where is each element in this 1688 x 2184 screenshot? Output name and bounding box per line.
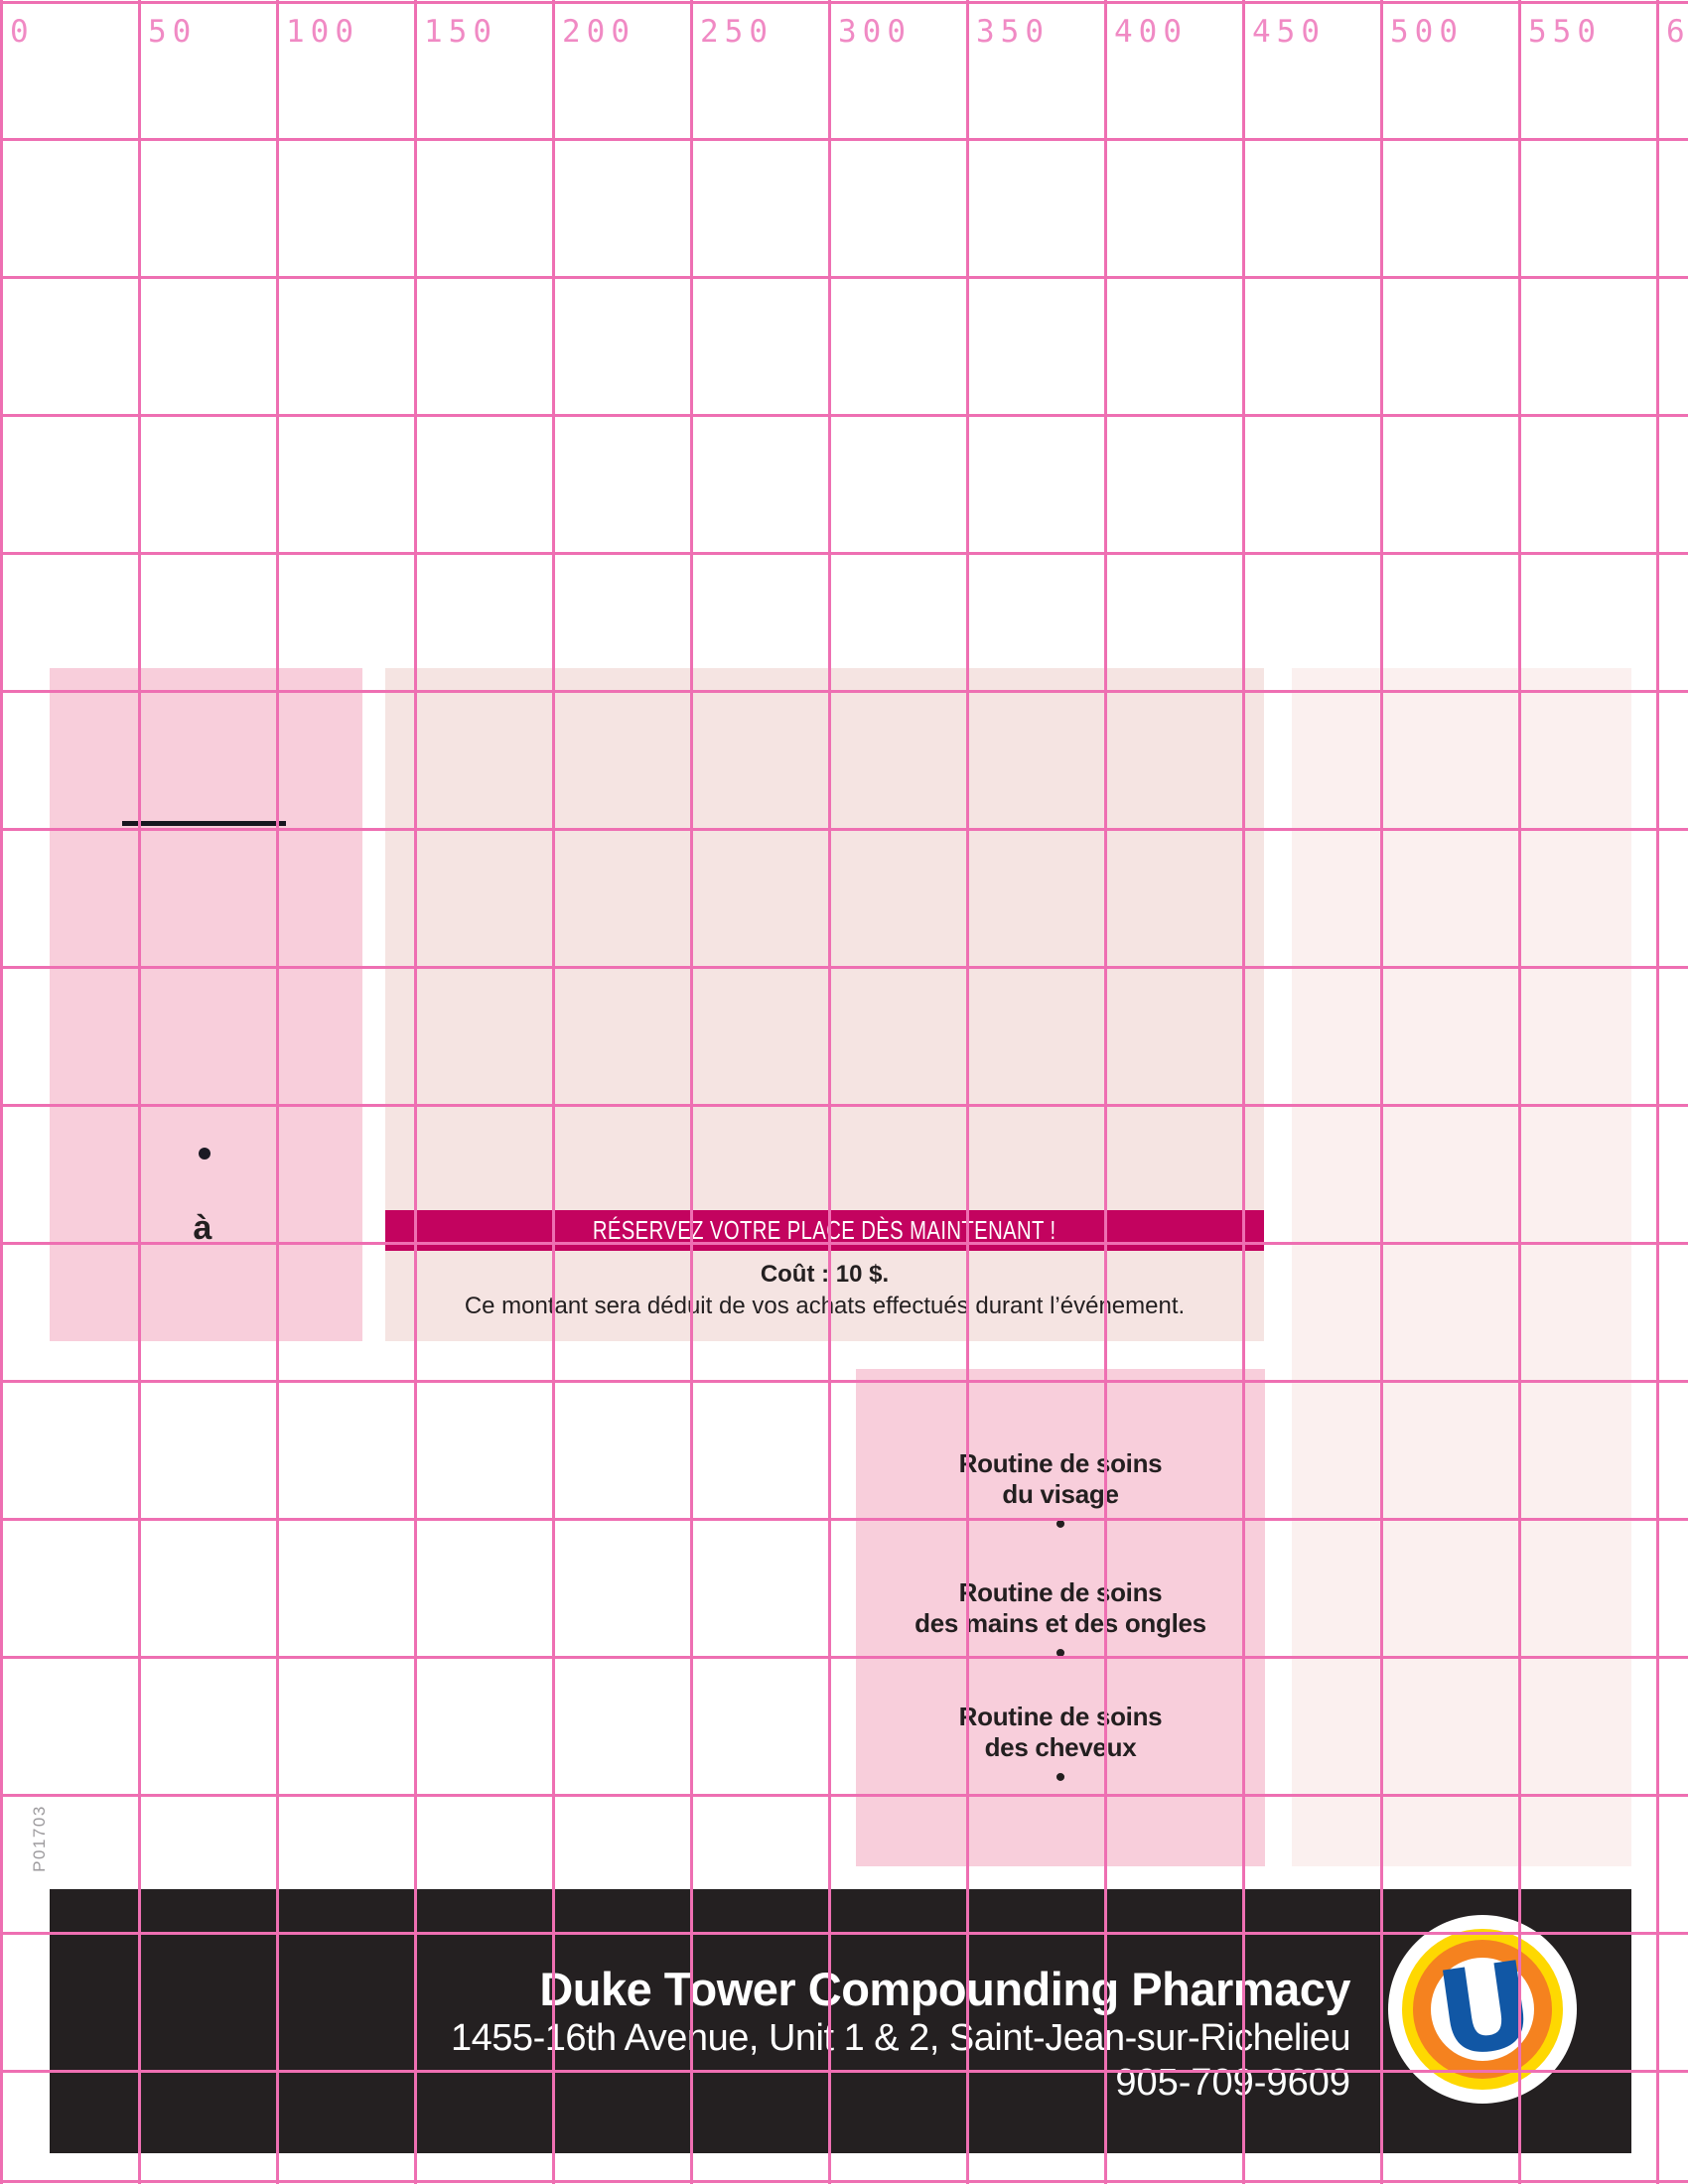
- grid-line-horizontal: [0, 414, 1688, 417]
- routine-line: des cheveux: [856, 1732, 1265, 1763]
- ruler-label: 150: [424, 14, 497, 50]
- proof-code-label: P01703: [30, 1794, 50, 1883]
- routine-item: Routine de soins des cheveux •: [856, 1702, 1265, 1791]
- ruler-label: 50: [148, 14, 197, 50]
- uniprix-logo: U: [1388, 1915, 1577, 2104]
- pharmacy-name: Duke Tower Compounding Pharmacy: [451, 1964, 1350, 2015]
- ruler-label: 400: [1114, 14, 1188, 50]
- ruler-label: 600: [1666, 14, 1688, 50]
- grid-line-horizontal: [0, 138, 1688, 141]
- routine-line: Routine de soins: [856, 1702, 1265, 1732]
- ruler-label: 300: [838, 14, 912, 50]
- grid-line-horizontal: [0, 1, 1688, 4]
- ruler-label: 100: [286, 14, 359, 50]
- proof-page: à RÉSERVEZ VOTRE PLACE DÈS MAINTENANT ! …: [0, 0, 1688, 2184]
- right-pale-panel: [1292, 668, 1631, 1866]
- ruler-label: 350: [976, 14, 1050, 50]
- routine-line: Routine de soins: [856, 1577, 1265, 1608]
- signature-line: [122, 821, 286, 826]
- grid-line-horizontal: [0, 276, 1688, 279]
- pharmacy-address: 1455-16th Avenue, Unit 1 & 2, Saint-Jean…: [451, 2015, 1350, 2061]
- grid-line-horizontal: [0, 552, 1688, 555]
- ruler-label: 250: [700, 14, 774, 50]
- bullet-dot: [199, 1148, 211, 1160]
- cost-line: Coût : 10 $.: [385, 1261, 1264, 1289]
- reservation-banner: RÉSERVEZ VOTRE PLACE DÈS MAINTENANT !: [385, 1210, 1264, 1251]
- routine-item: Routine de soins du visage •: [856, 1448, 1265, 1538]
- word-a: à: [153, 1209, 252, 1248]
- routine-bullet: •: [856, 1512, 1265, 1538]
- ruler-label: 0: [10, 14, 35, 50]
- routine-line: Routine de soins: [856, 1448, 1265, 1479]
- grid-line-horizontal: [0, 2180, 1688, 2183]
- ruler-label: 550: [1528, 14, 1602, 50]
- reservation-banner-label: RÉSERVEZ VOTRE PLACE DÈS MAINTENANT !: [593, 1215, 1056, 1246]
- ruler-label: 500: [1390, 14, 1464, 50]
- routine-line: des mains et des ongles: [856, 1608, 1265, 1639]
- footer-contact-block: Duke Tower Compounding Pharmacy 1455-16t…: [451, 1964, 1350, 2105]
- routine-item: Routine de soins des mains et des ongles…: [856, 1577, 1265, 1667]
- grid-line-vertical: [1656, 0, 1659, 2184]
- cost-note-line: Ce montant sera déduit de vos achats eff…: [385, 1293, 1264, 1320]
- routine-bullet: •: [856, 1765, 1265, 1791]
- pharmacy-phone: 905-709-9609: [451, 2061, 1350, 2105]
- routine-line: du visage: [856, 1479, 1265, 1510]
- ruler-label: 450: [1252, 14, 1326, 50]
- routine-bullet: •: [856, 1641, 1265, 1667]
- ruler-label: 200: [562, 14, 635, 50]
- grid-line-vertical: [0, 0, 3, 2184]
